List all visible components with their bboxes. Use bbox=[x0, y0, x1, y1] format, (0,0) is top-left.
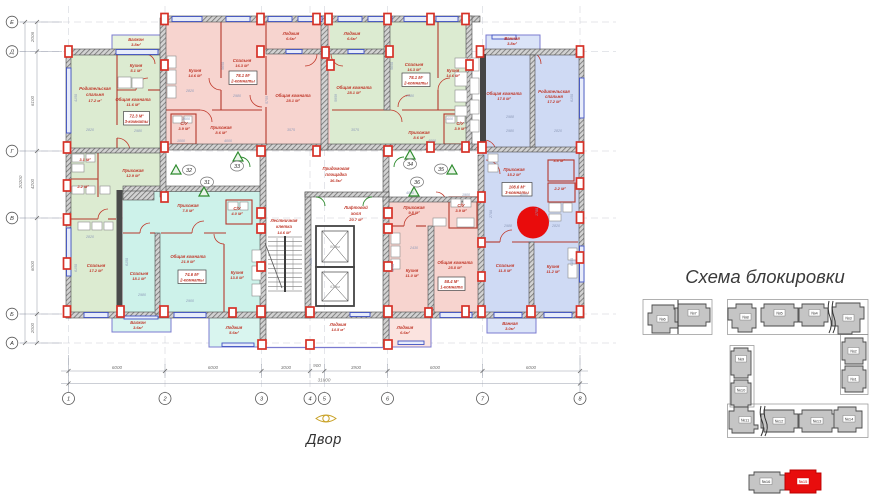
svg-text:74.6 М²: 74.6 М² bbox=[185, 272, 200, 277]
svg-text:4000: 4000 bbox=[224, 139, 232, 143]
svg-text:7.8 М²: 7.8 М² bbox=[182, 208, 194, 213]
svg-text:4150: 4150 bbox=[74, 94, 78, 102]
svg-text:1700: 1700 bbox=[535, 208, 539, 216]
svg-text:6000: 6000 bbox=[430, 365, 441, 370]
svg-text:№6: №6 bbox=[659, 317, 666, 322]
svg-text:площадка: площадка bbox=[325, 172, 347, 177]
svg-text:2820: 2820 bbox=[85, 128, 94, 132]
svg-text:6150: 6150 bbox=[125, 258, 129, 266]
svg-text:2820: 2820 bbox=[185, 89, 194, 93]
svg-text:3.9 М²: 3.9 М² bbox=[454, 126, 466, 131]
svg-text:4000: 4000 bbox=[520, 193, 528, 197]
svg-text:№3: №3 bbox=[845, 316, 852, 321]
svg-text:35: 35 bbox=[438, 167, 445, 173]
svg-text:№4: №4 bbox=[811, 311, 818, 316]
svg-text:2980: 2980 bbox=[232, 94, 241, 98]
svg-text:1600: 1600 bbox=[182, 117, 190, 121]
svg-text:Лестничная: Лестничная bbox=[270, 218, 298, 223]
svg-text:11.6 М²: 11.6 М² bbox=[126, 102, 140, 107]
svg-text:7000: 7000 bbox=[309, 258, 313, 266]
svg-text:1900: 1900 bbox=[462, 193, 470, 197]
svg-text:78.1 М²: 78.1 М² bbox=[409, 75, 424, 80]
svg-text:№11: №11 bbox=[741, 418, 750, 423]
svg-text:3.6м²: 3.6м² bbox=[133, 325, 144, 330]
svg-text:2-комнаты: 2-комнаты bbox=[403, 81, 428, 86]
svg-text:21.9 М²: 21.9 М² bbox=[180, 259, 195, 264]
svg-text:6150: 6150 bbox=[570, 94, 574, 102]
svg-text:17.2 М²: 17.2 М² bbox=[547, 99, 561, 104]
svg-text:16.3 М²: 16.3 М² bbox=[235, 63, 249, 68]
svg-text:8.6 М²: 8.6 М² bbox=[413, 135, 425, 140]
svg-text:13.8 М²: 13.8 М² bbox=[230, 275, 244, 280]
svg-text:36.5м²: 36.5м² bbox=[330, 178, 343, 183]
svg-text:4200: 4200 bbox=[30, 178, 35, 189]
svg-text:3.8м²: 3.8м² bbox=[131, 42, 142, 47]
svg-text:2000: 2000 bbox=[30, 322, 35, 334]
svg-text:4250: 4250 bbox=[391, 264, 395, 272]
svg-text:№16: №16 bbox=[762, 479, 772, 484]
svg-text:2980: 2980 bbox=[505, 129, 514, 133]
svg-text:2988: 2988 bbox=[503, 224, 512, 228]
svg-text:2820: 2820 bbox=[553, 129, 562, 133]
svg-text:6150: 6150 bbox=[570, 258, 574, 266]
svg-text:6150: 6150 bbox=[74, 264, 78, 272]
svg-text:11.2 М²: 11.2 М² bbox=[546, 269, 560, 274]
svg-text:№5: №5 bbox=[776, 311, 783, 316]
svg-text:3575: 3575 bbox=[287, 128, 295, 132]
svg-text:32: 32 bbox=[186, 168, 192, 174]
svg-text:2900: 2900 bbox=[185, 299, 194, 303]
svg-text:Родительская: Родительская bbox=[79, 86, 111, 91]
svg-text:3.9 М²: 3.9 М² bbox=[178, 126, 190, 131]
svg-text:3.9 М²: 3.9 М² bbox=[455, 208, 467, 213]
svg-text:5650: 5650 bbox=[221, 62, 225, 70]
svg-text:2.2 М²: 2.2 М² bbox=[553, 186, 566, 191]
svg-text:31: 31 bbox=[204, 180, 210, 186]
svg-text:18.1 М²: 18.1 М² bbox=[132, 276, 146, 281]
svg-text:34: 34 bbox=[407, 162, 413, 168]
svg-text:6000: 6000 bbox=[30, 260, 35, 271]
svg-text:2988: 2988 bbox=[505, 115, 514, 119]
svg-text:холл: холл bbox=[350, 211, 362, 216]
svg-text:1000: 1000 bbox=[177, 139, 185, 143]
svg-text:клетка: клетка bbox=[276, 224, 292, 229]
svg-text:№15: №15 bbox=[799, 479, 809, 484]
svg-text:3.8 М²: 3.8 М² bbox=[553, 158, 565, 163]
svg-text:36: 36 bbox=[414, 180, 421, 186]
svg-text:5755: 5755 bbox=[265, 96, 269, 104]
svg-text:3575: 3575 bbox=[351, 128, 359, 132]
svg-text:5650: 5650 bbox=[390, 62, 394, 70]
svg-text:1: 1 bbox=[67, 397, 70, 403]
svg-text:5.6м²: 5.6м² bbox=[229, 330, 240, 335]
svg-text:6000: 6000 bbox=[112, 365, 123, 370]
svg-text:2980: 2980 bbox=[405, 94, 414, 98]
svg-text:11.8 М²: 11.8 М² bbox=[498, 268, 512, 273]
svg-text:Двор: Двор bbox=[304, 432, 342, 448]
svg-text:Лифтовой: Лифтовой bbox=[343, 205, 368, 210]
svg-text:6.6м²: 6.6м² bbox=[400, 330, 411, 335]
svg-text:5.1 М²: 5.1 М² bbox=[130, 68, 142, 73]
svg-text:12.9 М²: 12.9 М² bbox=[126, 173, 140, 178]
svg-text:3900: 3900 bbox=[351, 365, 362, 370]
svg-text:6100: 6100 bbox=[30, 95, 35, 106]
svg-text:20.7 М²: 20.7 М² bbox=[348, 217, 363, 222]
svg-text:72.3 М²: 72.3 М² bbox=[129, 114, 144, 119]
svg-text:3-комнаты: 3-комнаты bbox=[125, 119, 149, 124]
svg-text:2820: 2820 bbox=[551, 224, 560, 228]
svg-text:№7: №7 bbox=[690, 311, 697, 316]
svg-text:№14: №14 bbox=[845, 417, 855, 422]
svg-text:17.8 М²: 17.8 М² bbox=[497, 96, 511, 101]
svg-text:2-комнаты: 2-комнаты bbox=[230, 79, 255, 84]
svg-text:33: 33 bbox=[234, 164, 241, 170]
svg-text:Б: Б bbox=[10, 312, 14, 318]
svg-text:2820: 2820 bbox=[85, 235, 94, 239]
svg-text:6.6м²: 6.6м² bbox=[347, 36, 358, 41]
svg-text:2006: 2006 bbox=[30, 31, 35, 43]
svg-text:5959: 5959 bbox=[334, 94, 338, 102]
svg-text:6.6м²: 6.6м² bbox=[286, 36, 297, 41]
svg-text:14.6 М²: 14.6 М² bbox=[188, 73, 202, 78]
svg-text:58.4 М²: 58.4 М² bbox=[444, 279, 459, 284]
svg-text:108.6 М²: 108.6 М² bbox=[509, 185, 526, 190]
svg-text:№8: №8 bbox=[742, 315, 749, 320]
svg-text:А: А bbox=[9, 341, 14, 347]
svg-text:Д: Д bbox=[9, 50, 14, 56]
svg-text:3.0м²: 3.0м² bbox=[505, 326, 516, 331]
svg-text:1-комната: 1-комната bbox=[440, 285, 463, 290]
svg-text:1600: 1600 bbox=[445, 117, 453, 121]
svg-text:2700: 2700 bbox=[489, 210, 493, 219]
svg-text:3000: 3000 bbox=[281, 365, 292, 370]
svg-text:800кг: 800кг bbox=[330, 245, 340, 249]
svg-text:6000: 6000 bbox=[208, 365, 219, 370]
svg-text:25.8 М²: 25.8 М² bbox=[447, 265, 462, 270]
svg-text:11.0 М²: 11.0 М² bbox=[405, 273, 419, 278]
svg-text:4000: 4000 bbox=[428, 139, 436, 143]
svg-text:6000: 6000 bbox=[526, 365, 537, 370]
svg-text:спальня: спальня bbox=[86, 92, 104, 97]
svg-text:17.2 М²: 17.2 М² bbox=[89, 268, 103, 273]
svg-text:Придомовая: Придомовая bbox=[323, 166, 350, 171]
svg-text:3.1 М²: 3.1 М² bbox=[79, 157, 91, 162]
svg-text:№13: №13 bbox=[813, 419, 823, 424]
svg-text:2980: 2980 bbox=[133, 129, 142, 133]
svg-text:2980: 2980 bbox=[137, 293, 146, 297]
svg-text:16.3 М²: 16.3 М² bbox=[407, 67, 421, 72]
svg-text:№12: №12 bbox=[775, 419, 785, 424]
svg-text:4.0 М²: 4.0 М² bbox=[230, 211, 243, 216]
svg-text:28.1 М²: 28.1 М² bbox=[285, 98, 300, 103]
svg-text:14.6 М²: 14.6 М² bbox=[446, 73, 460, 78]
svg-text:900: 900 bbox=[313, 363, 321, 368]
svg-text:8.6 М²: 8.6 М² bbox=[215, 130, 227, 135]
svg-text:№9: №9 bbox=[738, 357, 745, 362]
svg-text:28.1 М²: 28.1 М² bbox=[346, 90, 361, 95]
svg-text:4: 4 bbox=[308, 397, 311, 403]
svg-text:14.5 м²: 14.5 м² bbox=[331, 327, 345, 332]
svg-text:Е: Е bbox=[10, 20, 14, 26]
svg-text:2430: 2430 bbox=[409, 246, 418, 250]
svg-text:№2: №2 bbox=[850, 349, 857, 354]
svg-text:31800: 31800 bbox=[318, 378, 331, 383]
svg-text:2-комнаты: 2-комнаты bbox=[179, 278, 204, 283]
svg-text:4000: 4000 bbox=[406, 191, 414, 195]
svg-text:17.2 м²: 17.2 м² bbox=[88, 98, 102, 103]
svg-text:3.8м²: 3.8м² bbox=[507, 41, 518, 46]
svg-text:Схема блокировки: Схема блокировки bbox=[685, 266, 845, 287]
svg-text:В: В bbox=[10, 216, 14, 222]
svg-text:9.8 М²: 9.8 М² bbox=[408, 210, 420, 215]
svg-text:2.2 М²: 2.2 М² bbox=[76, 184, 89, 189]
svg-text:14.6 М²: 14.6 М² bbox=[277, 230, 291, 235]
svg-text:78.1 М²: 78.1 М² bbox=[236, 73, 251, 78]
svg-text:№10: №10 bbox=[737, 388, 747, 393]
svg-text:№1: №1 bbox=[850, 377, 857, 382]
svg-text:15.2 М²: 15.2 М² bbox=[507, 172, 521, 177]
svg-text:630кг: 630кг bbox=[330, 285, 340, 289]
svg-text:20200: 20200 bbox=[18, 175, 23, 189]
